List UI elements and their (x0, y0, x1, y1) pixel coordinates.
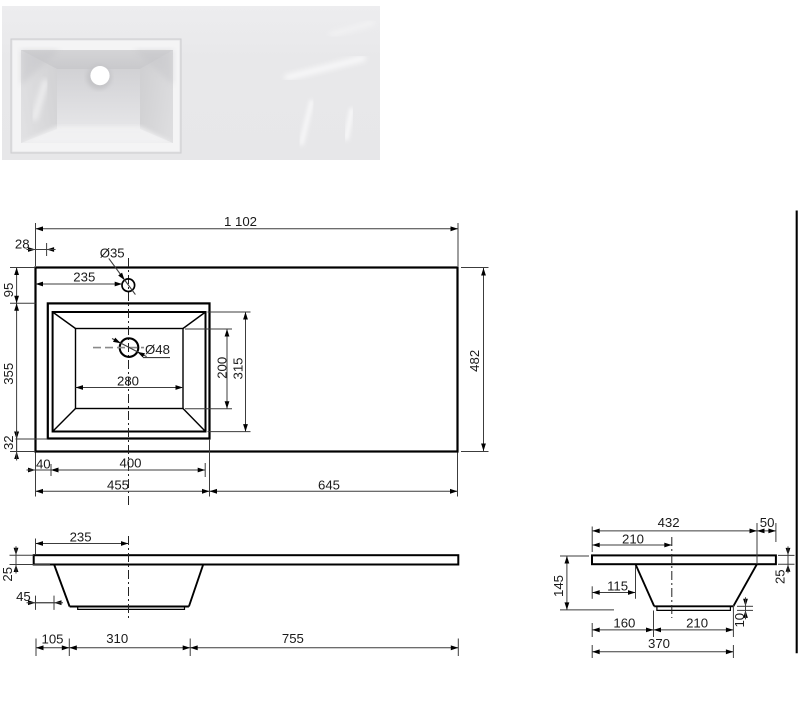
svg-text:105: 105 (41, 632, 63, 647)
svg-text:210: 210 (686, 615, 708, 630)
svg-text:370: 370 (648, 636, 670, 651)
svg-text:32: 32 (1, 435, 16, 450)
svg-text:200: 200 (215, 357, 230, 379)
svg-text:315: 315 (231, 357, 246, 379)
svg-text:355: 355 (1, 363, 16, 385)
svg-text:10: 10 (732, 613, 747, 628)
svg-text:25: 25 (772, 569, 787, 584)
svg-text:115: 115 (607, 579, 628, 594)
svg-text:25: 25 (0, 567, 15, 582)
svg-text:235: 235 (73, 270, 95, 285)
svg-text:Ø48: Ø48 (145, 342, 170, 357)
svg-text:645: 645 (318, 477, 340, 492)
svg-text:755: 755 (282, 631, 304, 646)
svg-text:95: 95 (1, 283, 16, 298)
svg-text:1 102: 1 102 (224, 214, 257, 229)
svg-text:482: 482 (467, 350, 482, 372)
svg-text:310: 310 (106, 631, 128, 646)
svg-text:145: 145 (551, 575, 566, 597)
svg-text:40: 40 (36, 457, 51, 472)
svg-text:235: 235 (70, 530, 92, 545)
svg-text:160: 160 (613, 615, 635, 630)
svg-text:210: 210 (622, 531, 644, 546)
svg-text:28: 28 (15, 237, 30, 252)
svg-text:432: 432 (658, 515, 680, 530)
svg-text:50: 50 (760, 515, 775, 530)
svg-text:455: 455 (107, 477, 129, 492)
svg-text:45: 45 (16, 589, 31, 604)
svg-text:280: 280 (117, 374, 139, 389)
svg-text:Ø35: Ø35 (100, 246, 125, 261)
svg-text:400: 400 (119, 456, 141, 471)
